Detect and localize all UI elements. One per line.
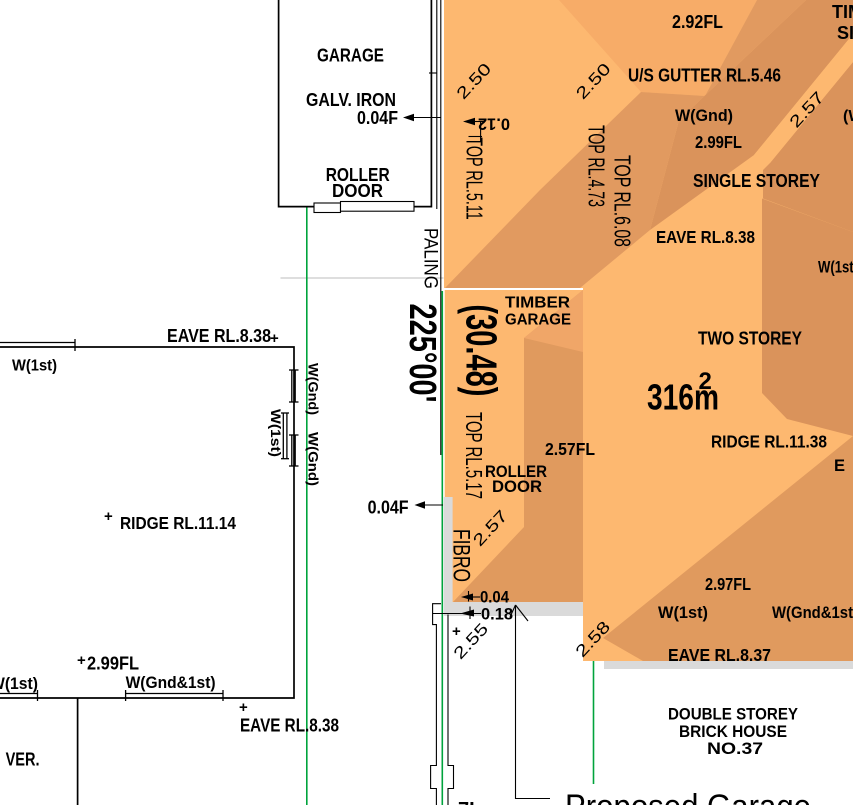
svg-text:DOOR: DOOR — [332, 181, 383, 201]
svg-text:TOP RL.5.11: TOP RL.5.11 — [461, 137, 487, 220]
svg-text:TOP RL.5.17: TOP RL.5.17 — [461, 412, 487, 499]
svg-text:RIDGE RL.11.38: RIDGE RL.11.38 — [711, 432, 827, 452]
svg-text:PALING: PALING — [420, 228, 441, 289]
svg-text:2.92FL: 2.92FL — [672, 12, 723, 32]
svg-text:2.57FL: 2.57FL — [545, 439, 595, 459]
svg-text:E: E — [834, 457, 845, 475]
svg-text:+: + — [270, 330, 279, 347]
svg-text:+: + — [77, 652, 86, 669]
svg-text:7L: 7L — [458, 799, 481, 805]
svg-text:0.18: 0.18 — [481, 606, 513, 624]
svg-text:EAVE RL.8.37: EAVE RL.8.37 — [668, 645, 771, 665]
svg-text:+: + — [239, 699, 248, 716]
svg-text:W(1st): W(1st) — [0, 674, 38, 693]
svg-text:TOP RL.4.73: TOP RL.4.73 — [584, 125, 610, 207]
svg-text:0.04: 0.04 — [480, 589, 510, 607]
svg-text:W(1st): W(1st) — [658, 603, 708, 622]
svg-text:W(Gnd): W(Gnd) — [306, 363, 322, 415]
svg-text:W(1st): W(1st) — [818, 258, 853, 277]
svg-text:W(Gnd&1st): W(Gnd&1st) — [126, 673, 216, 692]
svg-text:W(Gnd): W(Gnd) — [306, 432, 322, 486]
svg-text:0.04F: 0.04F — [357, 108, 398, 128]
svg-text:W(1st): W(1st) — [268, 409, 284, 457]
svg-text:TOP RL.6.08: TOP RL.6.08 — [610, 155, 636, 247]
svg-text:SINGLE STOREY: SINGLE STOREY — [693, 171, 820, 191]
svg-text:2: 2 — [699, 368, 712, 395]
svg-text:GALV. IRON: GALV. IRON — [306, 90, 396, 110]
svg-text:EAVE RL.8.38: EAVE RL.8.38 — [167, 326, 271, 346]
svg-text:+: + — [104, 508, 113, 525]
svg-text:2.99FL: 2.99FL — [695, 132, 742, 152]
svg-text:(W: (W — [843, 108, 853, 125]
svg-text:(30.48): (30.48) — [457, 304, 506, 396]
svg-text:EAVE RL.8.38: EAVE RL.8.38 — [656, 227, 755, 247]
svg-text:DOOR: DOOR — [492, 478, 542, 496]
svg-text:+: + — [452, 623, 461, 640]
svg-text:SI: SI — [837, 23, 853, 43]
svg-text:0.12: 0.12 — [478, 115, 510, 133]
svg-text:W(1st): W(1st) — [12, 358, 57, 375]
svg-text:TWO STOREY: TWO STOREY — [698, 329, 802, 349]
svg-text:TIMBER: TIMBER — [505, 295, 570, 312]
svg-text:GARAGE: GARAGE — [317, 46, 384, 66]
svg-text:2.99FL: 2.99FL — [87, 654, 139, 674]
svg-text:2.97FL: 2.97FL — [705, 574, 751, 594]
svg-text:EAVE RL.8.38: EAVE RL.8.38 — [240, 716, 339, 736]
svg-text:RIDGE RL.11.14: RIDGE RL.11.14 — [120, 513, 236, 533]
svg-text:W(Gnd): W(Gnd) — [675, 106, 733, 125]
svg-text:DOUBLE STOREY: DOUBLE STOREY — [668, 705, 799, 724]
svg-text:VER.: VER. — [6, 750, 40, 770]
svg-text:W(Gnd&1st): W(Gnd&1st) — [772, 603, 853, 622]
svg-text:Proposed Garage: Proposed Garage — [565, 788, 811, 805]
svg-text:GARAGE: GARAGE — [505, 312, 571, 329]
svg-text:0.04F: 0.04F — [368, 497, 409, 517]
svg-text:TIM: TIM — [832, 2, 853, 22]
svg-text:NO.37: NO.37 — [707, 739, 763, 758]
svg-text:225°00': 225°00' — [401, 304, 443, 403]
svg-text:U/S GUTTER RL.5.46: U/S GUTTER RL.5.46 — [628, 66, 781, 86]
